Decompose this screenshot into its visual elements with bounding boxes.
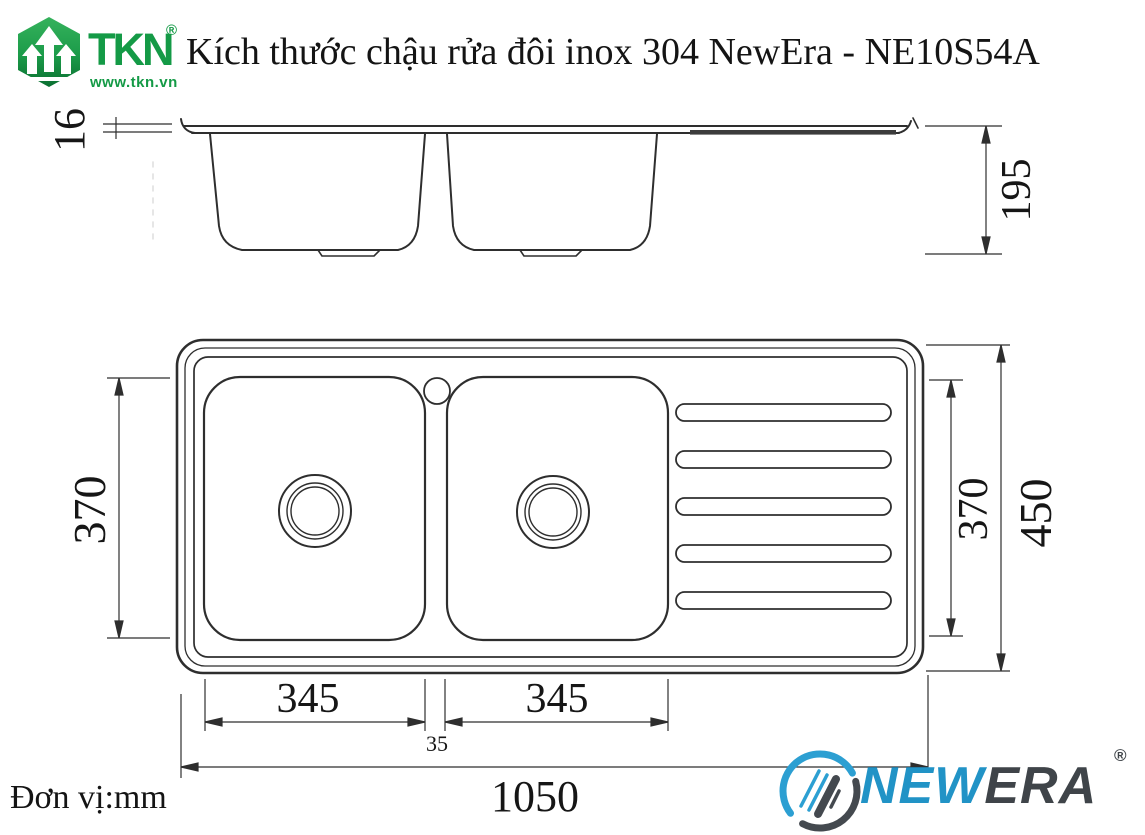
deck-panel bbox=[194, 357, 907, 657]
faucet-hole bbox=[424, 378, 450, 404]
tkn-hexagon-icon bbox=[14, 14, 84, 90]
dim-345-lines bbox=[205, 679, 668, 731]
newera-wordmark: NEWERA bbox=[860, 760, 1097, 812]
side-view-drawing bbox=[153, 118, 918, 256]
newera-wordmark-new: NEW bbox=[860, 757, 984, 815]
side-bowl-right bbox=[447, 134, 657, 250]
sink-spec-sheet: TKN ® www.tkn.vn Kích thước chậu rửa đôi… bbox=[0, 0, 1145, 835]
dim-16-lines bbox=[103, 117, 172, 139]
dim-label-1050: 1050 bbox=[491, 775, 579, 819]
dim-370-left-lines bbox=[107, 378, 170, 638]
drainboard-profile-band bbox=[690, 130, 896, 135]
newera-logo: NEWERA ® bbox=[772, 744, 1145, 835]
page-title: Kích thước chậu rửa đôi inox 304 NewEra … bbox=[186, 30, 1040, 74]
dim-label-370-right: 370 bbox=[953, 478, 995, 541]
drain-left bbox=[279, 475, 351, 547]
dim-label-370-left: 370 bbox=[67, 476, 113, 545]
dim-label-345-right: 345 bbox=[526, 678, 589, 720]
tkn-logo: TKN ® www.tkn.vn bbox=[14, 12, 194, 96]
newera-registered-mark: ® bbox=[1114, 746, 1127, 766]
newera-emblem-icon bbox=[774, 744, 866, 835]
drain-right bbox=[517, 476, 589, 548]
unit-note: Đơn vị:mm bbox=[10, 779, 167, 817]
tkn-logo-text: TKN bbox=[88, 24, 171, 76]
bowl-right bbox=[447, 377, 668, 640]
dim-label-345-left: 345 bbox=[277, 678, 340, 720]
side-bowl-left bbox=[210, 134, 425, 250]
dim-195-lines bbox=[925, 126, 1002, 254]
tkn-website-text: www.tkn.vn bbox=[90, 74, 178, 91]
top-view-drawing bbox=[177, 340, 923, 673]
bowl-left bbox=[204, 377, 425, 640]
dim-label-depth: 195 bbox=[996, 159, 1038, 222]
sink-outer-edge bbox=[177, 340, 923, 673]
dim-label-rim-thickness: 16 bbox=[48, 108, 92, 152]
dim-label-35: 35 bbox=[426, 733, 448, 755]
sink-rim-line bbox=[185, 348, 915, 666]
drainboard-grooves bbox=[676, 404, 891, 609]
tkn-registered-mark: ® bbox=[166, 22, 177, 39]
dim-label-450: 450 bbox=[1013, 479, 1059, 548]
newera-wordmark-era: ERA bbox=[984, 757, 1097, 815]
